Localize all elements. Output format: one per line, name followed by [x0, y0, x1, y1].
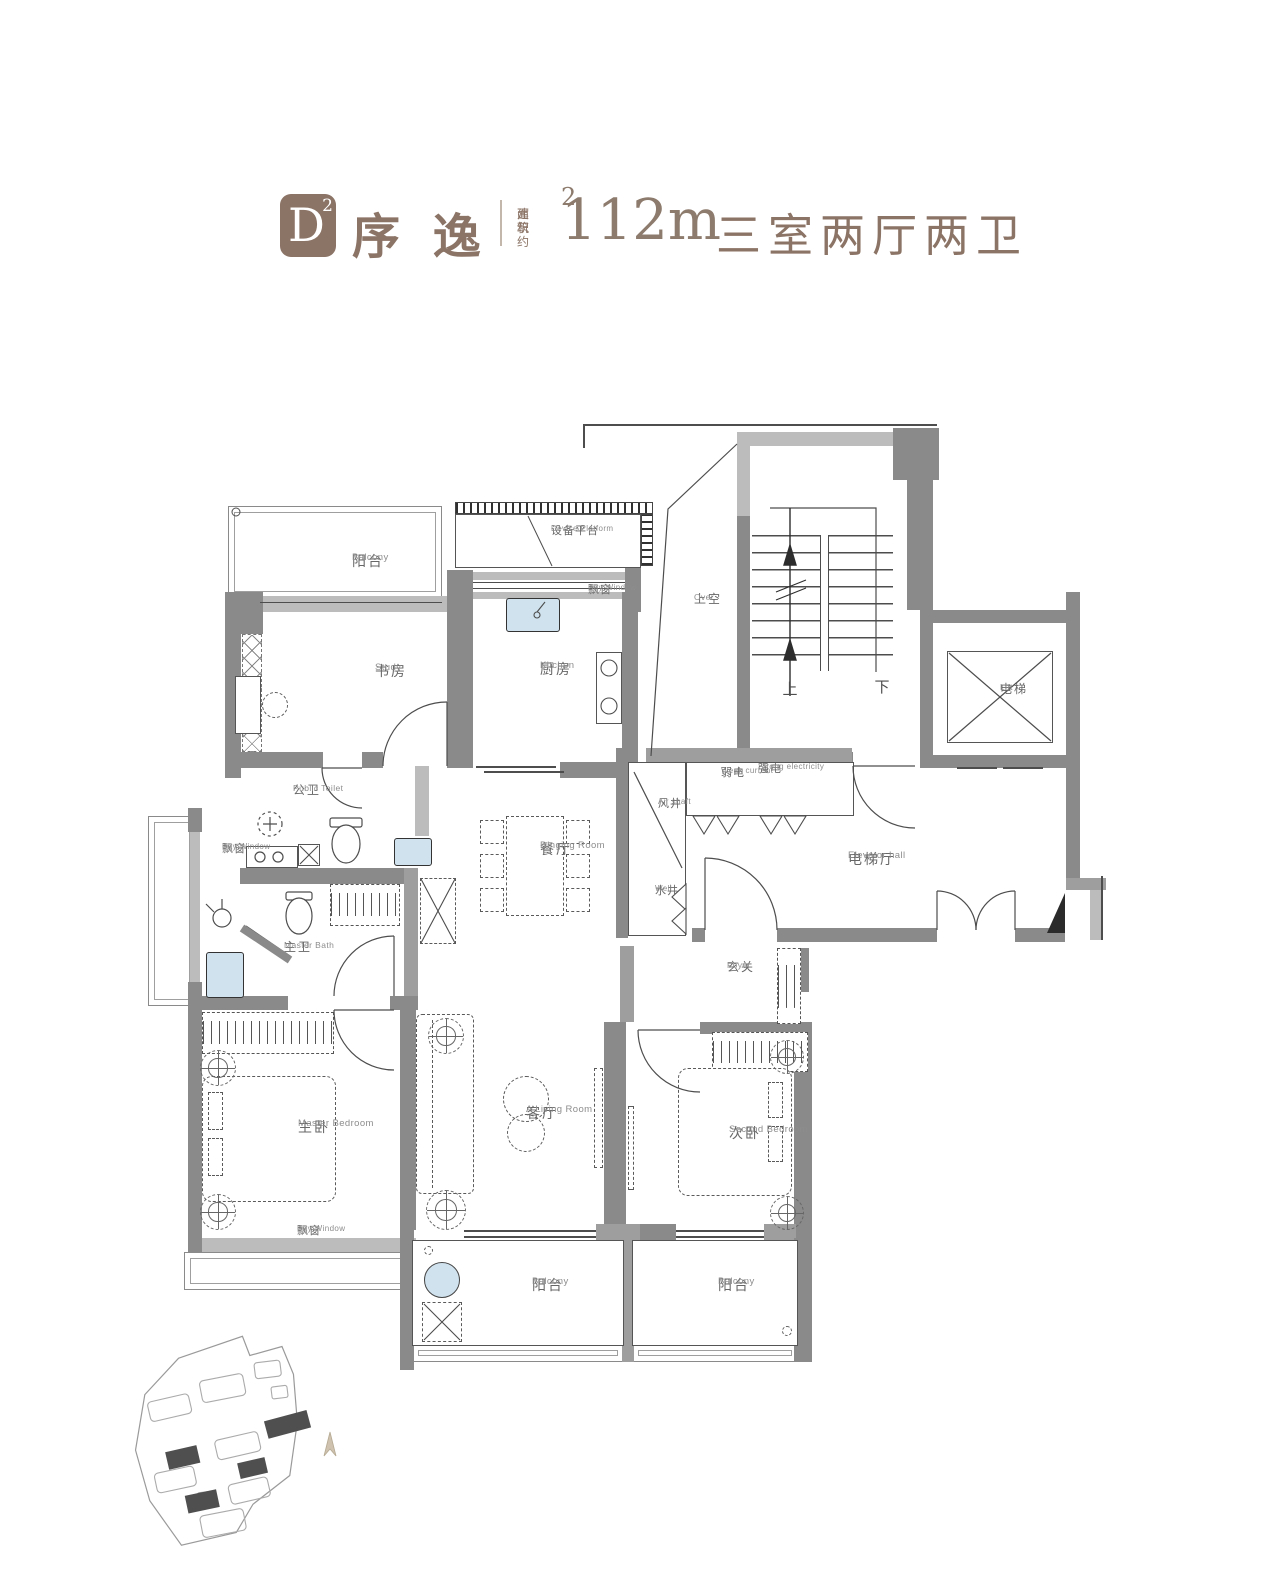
- dining-chair: [480, 820, 504, 844]
- plan-geometry: Kitchen: [540, 660, 575, 672]
- plan-geometry: [412, 1344, 624, 1362]
- crosshair-symbol: [200, 1194, 236, 1230]
- floor-plan: 阳台Balcony 设备平台Device Platform 飘窗Bay Wind…: [0, 0, 1280, 1585]
- plan-geometry: [240, 868, 415, 884]
- stair-up-label: 上: [782, 678, 797, 699]
- plan-geometry: [473, 572, 625, 580]
- pillow: [768, 1082, 783, 1118]
- plan-geometry: [225, 752, 323, 768]
- bath-diagonal-wall: [242, 928, 290, 960]
- plan-geometry: [1066, 878, 1106, 890]
- plan-geometry: [616, 748, 628, 938]
- plan-geometry: [128, 1332, 323, 1549]
- plan-geometry: Master Bath: [284, 940, 334, 951]
- plan-geometry: Dinging Room: [540, 840, 605, 852]
- plan-geometry: [641, 514, 653, 566]
- washing-machine: [298, 844, 320, 866]
- plan-geometry: [334, 936, 394, 996]
- plan-geometry: [228, 506, 442, 598]
- plan-geometry: [676, 1236, 764, 1238]
- dining-chair: [480, 888, 504, 912]
- plan-geometry: [255, 596, 447, 612]
- plan-geometry: Public Toilet: [293, 783, 343, 794]
- plan-geometry: [128, 1332, 312, 1549]
- stair-down-label: 下: [874, 676, 889, 697]
- plan-geometry: Device Platform: [551, 524, 613, 534]
- door-arc-master-bedroom: [334, 1010, 394, 1070]
- device-platform-box: [455, 514, 641, 568]
- plan-geometry: [737, 446, 750, 516]
- hall-wardrobe: [330, 884, 400, 926]
- plan-geometry: [148, 816, 196, 1006]
- tv-cabinet: [628, 1106, 634, 1190]
- shower-glass: [243, 926, 290, 961]
- compass-icon: [324, 1432, 336, 1456]
- plan-geometry: Over: [694, 592, 714, 603]
- tv: [594, 1068, 603, 1168]
- plan-geometry: [920, 610, 933, 768]
- plan-geometry: [332, 825, 360, 863]
- dining-chair: [566, 888, 590, 912]
- plan-geometry: [225, 592, 263, 634]
- plan-geometry: Master Bedroom: [298, 1118, 374, 1130]
- cabinet: [420, 878, 456, 944]
- plan-geometry: [188, 808, 202, 832]
- plan-geometry: [760, 816, 782, 834]
- double-door-hall: [937, 891, 1015, 930]
- plan-geometry: [920, 755, 1080, 768]
- plan-geometry: [693, 816, 715, 834]
- door-arc-master-bath: [334, 936, 394, 996]
- plan-geometry: [415, 766, 429, 836]
- plan-geometry: [258, 812, 282, 836]
- dining-chair: [480, 854, 504, 878]
- plan-geometry: [476, 766, 556, 768]
- dining-table: [506, 816, 564, 916]
- plan-geometry: Air shaft: [658, 797, 691, 807]
- plan-geometry: [464, 1230, 596, 1232]
- plan-geometry: [1066, 592, 1080, 770]
- door-arc-stairwell: [853, 766, 915, 828]
- floor-drain: [422, 1302, 462, 1342]
- plan-geometry: [447, 570, 473, 768]
- stove: [596, 652, 622, 724]
- balcony-right-area: [632, 1240, 798, 1346]
- plan-geometry: [705, 858, 777, 930]
- shoe-cabinet: [777, 948, 801, 1024]
- plan-geometry: [334, 1010, 394, 1070]
- plan-geometry: [976, 891, 1015, 930]
- plan-geometry: Bay Window: [222, 842, 270, 852]
- plan-geometry: [330, 818, 362, 827]
- plan-geometry: [784, 816, 806, 834]
- plan-geometry: [213, 909, 231, 927]
- plan-geometry: [404, 868, 418, 1008]
- neighbor-door-leaf: [1047, 893, 1065, 933]
- plan-geometry: [184, 1252, 416, 1290]
- pillow: [208, 1138, 223, 1176]
- plan-geometry: [362, 752, 383, 768]
- plan-geometry: [737, 516, 750, 766]
- plan-geometry: Second Bedroom: [729, 1124, 808, 1136]
- crosshair-symbol: [426, 1190, 466, 1230]
- crosshair-symbol: [770, 1196, 804, 1230]
- plan-geometry: Balcony: [532, 1276, 569, 1288]
- plan-geometry: [646, 748, 852, 762]
- study-chair: [262, 692, 288, 718]
- site-key-plan: [128, 1332, 343, 1564]
- plan-geometry: Well: [655, 884, 672, 894]
- plan-geometry: [206, 899, 222, 912]
- plan-geometry: [907, 478, 933, 610]
- kitchen-sink: [506, 598, 560, 632]
- plan-geometry: [286, 898, 312, 934]
- shaft-box: [628, 762, 686, 936]
- plan-geometry: [263, 817, 277, 831]
- plan-geometry: [400, 1008, 416, 1230]
- floor-plan-page: D 2 序 逸 建 筑 面积约 112m2 三室两厅两卫: [0, 0, 1280, 1585]
- plan-geometry: Bay Window: [588, 583, 636, 593]
- plan-geometry: Strong electricity: [758, 762, 824, 772]
- hall-sink: [394, 838, 432, 866]
- plan-geometry: Balcony: [352, 552, 389, 564]
- plan-geometry: [383, 702, 447, 766]
- plan-geometry: Balcony: [718, 1276, 755, 1288]
- plan-geometry: [782, 1326, 792, 1336]
- plan-geometry: Foyer: [727, 960, 751, 971]
- plan-geometry: [464, 1236, 596, 1238]
- plan-geometry: [260, 602, 442, 603]
- crosshair-symbol: [770, 1040, 804, 1074]
- plan-geometry: [188, 1238, 416, 1252]
- pillow: [208, 1092, 223, 1130]
- balcony-basin: [424, 1262, 460, 1298]
- door-arc-unit-entry: [705, 858, 777, 930]
- bath-sink: [206, 952, 244, 998]
- plan-geometry: [620, 946, 634, 1022]
- stair-rail: [820, 535, 829, 671]
- plan-geometry: [632, 1344, 798, 1362]
- plan-geometry: [777, 928, 937, 942]
- vent-symbols: [672, 816, 806, 934]
- plan-geometry: [1101, 876, 1103, 940]
- plan-geometry: [424, 1246, 433, 1255]
- plan-geometry: [717, 816, 739, 834]
- plan-geometry: [692, 928, 705, 942]
- plan-geometry: Study: [375, 662, 401, 674]
- crosshair-symbol: [200, 1050, 236, 1086]
- plan-geometry: [1015, 928, 1065, 942]
- plan-geometry: A Living Room: [526, 1104, 592, 1116]
- plan-geometry: [188, 996, 288, 1010]
- plan-geometry: Bay Window: [297, 1224, 345, 1234]
- plan-geometry: [1066, 755, 1080, 880]
- plan-geometry: Lift: [1000, 682, 1013, 693]
- master-wardrobe: [202, 1012, 334, 1054]
- plan-geometry: [676, 1230, 764, 1232]
- plan-geometry: [583, 424, 937, 426]
- plan-geometry: [324, 1432, 336, 1456]
- door-arc-study: [383, 702, 447, 766]
- plan-geometry: [853, 766, 915, 828]
- plan-geometry: [484, 771, 564, 773]
- plan-geometry: [286, 892, 312, 900]
- plan-geometry: [583, 424, 585, 448]
- plan-geometry: [737, 432, 907, 446]
- plan-geometry: [455, 502, 653, 514]
- study-desk: [235, 676, 261, 734]
- crosshair-symbol: [428, 1018, 464, 1054]
- plan-geometry: [190, 832, 200, 982]
- plan-geometry: [920, 610, 1080, 623]
- plan-geometry: [893, 428, 939, 480]
- plan-geometry: [604, 1022, 626, 1228]
- plan-geometry: [937, 891, 976, 930]
- plan-geometry: Elevator hall: [848, 850, 905, 862]
- plan-geometry: [243, 931, 287, 961]
